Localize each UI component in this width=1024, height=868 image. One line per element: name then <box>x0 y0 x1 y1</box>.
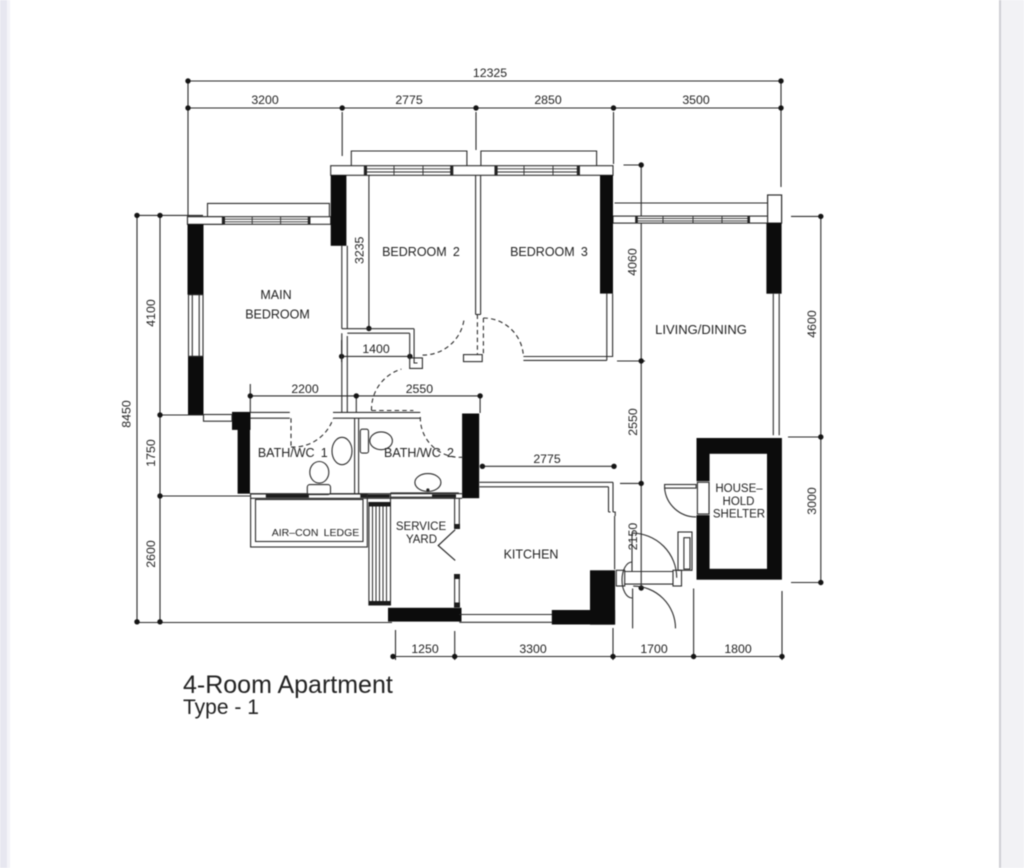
svg-text:4100: 4100 <box>144 299 158 327</box>
svg-text:2150: 2150 <box>626 523 640 551</box>
svg-text:2775: 2775 <box>533 452 561 466</box>
svg-text:BATH/WC 2: BATH/WC 2 <box>384 446 454 460</box>
svg-text:HOLD: HOLD <box>723 496 755 508</box>
svg-text:3000: 3000 <box>805 487 819 515</box>
svg-text:HOUSE–: HOUSE– <box>715 483 763 495</box>
svg-text:2550: 2550 <box>626 408 640 436</box>
svg-text:8450: 8450 <box>120 400 134 428</box>
svg-text:LIVING/DINING: LIVING/DINING <box>655 322 747 337</box>
svg-text:2775: 2775 <box>395 93 423 107</box>
svg-text:YARD: YARD <box>406 534 437 546</box>
svg-text:1700: 1700 <box>640 642 668 656</box>
svg-text:MAIN: MAIN <box>260 288 291 302</box>
svg-text:SHELTER: SHELTER <box>713 509 765 521</box>
svg-text:12325: 12325 <box>473 66 507 80</box>
svg-text:2600: 2600 <box>144 540 158 568</box>
svg-text:2850: 2850 <box>534 93 562 107</box>
svg-text:3200: 3200 <box>251 93 279 107</box>
svg-text:AIR–CON LEDGE: AIR–CON LEDGE <box>272 527 360 539</box>
svg-text:4-Room Apartment: 4-Room Apartment <box>183 671 393 699</box>
svg-text:1250: 1250 <box>411 642 439 656</box>
svg-text:BEDROOM 2: BEDROOM 2 <box>382 245 460 259</box>
svg-text:1400: 1400 <box>362 342 390 356</box>
svg-text:BEDROOM: BEDROOM <box>245 308 310 322</box>
svg-text:BATH/WC 1: BATH/WC 1 <box>258 446 328 460</box>
svg-text:KITCHEN: KITCHEN <box>504 548 559 562</box>
svg-text:1800: 1800 <box>724 642 752 656</box>
svg-text:4060: 4060 <box>626 248 640 276</box>
svg-text:3500: 3500 <box>682 93 710 107</box>
svg-text:Type - 1: Type - 1 <box>183 696 259 719</box>
svg-text:SERVICE: SERVICE <box>396 521 447 533</box>
svg-text:2550: 2550 <box>406 382 434 396</box>
svg-text:3235: 3235 <box>353 236 367 264</box>
svg-text:2200: 2200 <box>291 382 319 396</box>
svg-text:BEDROOM 3: BEDROOM 3 <box>510 245 588 259</box>
svg-text:3300: 3300 <box>519 642 547 656</box>
svg-text:1750: 1750 <box>144 439 158 467</box>
svg-text:4600: 4600 <box>805 310 819 338</box>
